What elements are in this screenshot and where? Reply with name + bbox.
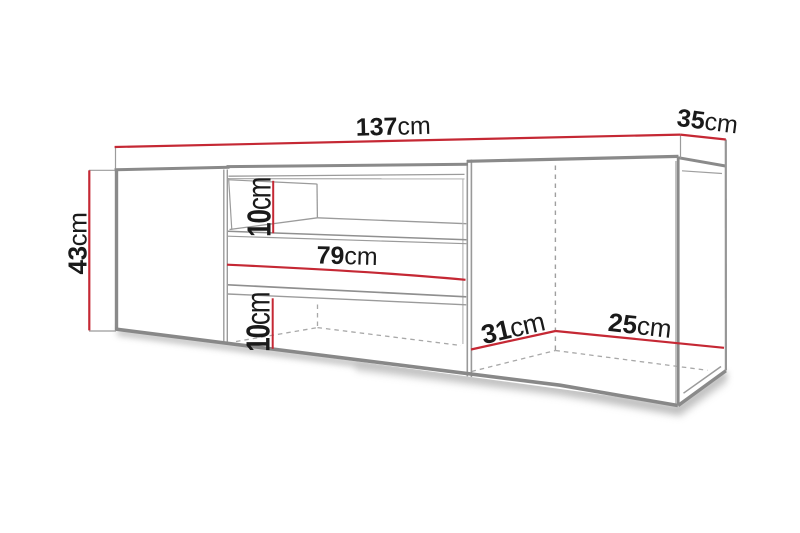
svg-text:10cm: 10cm bbox=[242, 178, 279, 237]
svg-text:137cm: 137cm bbox=[355, 112, 431, 142]
svg-text:43cm: 43cm bbox=[63, 213, 93, 275]
svg-text:79cm: 79cm bbox=[316, 241, 378, 271]
svg-text:10cm: 10cm bbox=[241, 293, 278, 352]
